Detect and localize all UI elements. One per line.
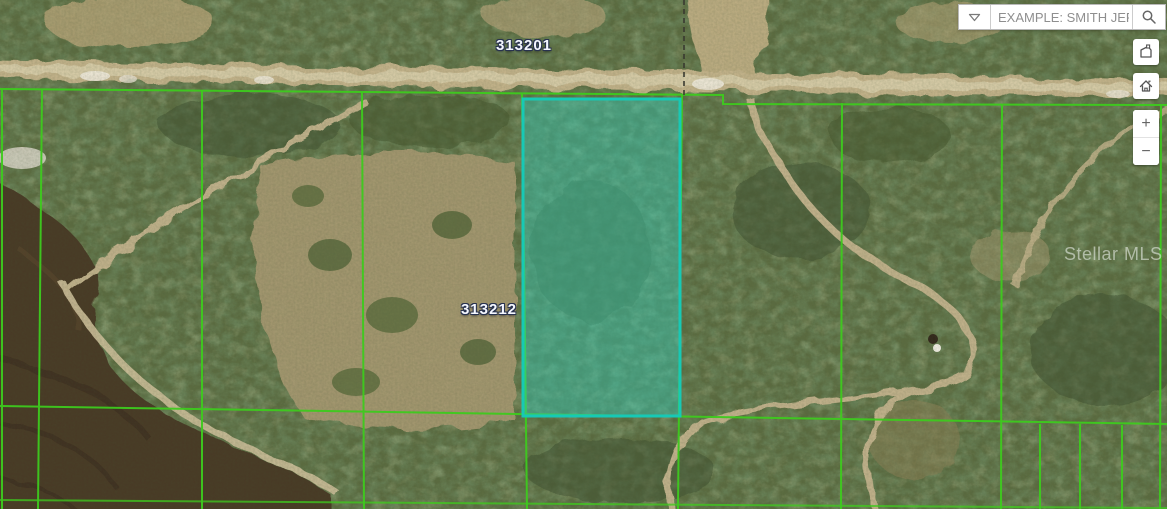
zoom-in-button[interactable]: +	[1133, 110, 1159, 137]
parcel-label-313201: 313201	[496, 37, 552, 54]
polygon-icon	[1138, 44, 1154, 60]
measure-button[interactable]	[1133, 39, 1159, 65]
home-icon	[1138, 78, 1154, 94]
aerial-imagery[interactable]	[0, 0, 1167, 509]
search-bar	[958, 4, 1166, 30]
watermark: Stellar MLS	[1064, 244, 1163, 265]
zoom-out-button[interactable]: −	[1133, 138, 1159, 165]
home-button[interactable]	[1133, 73, 1159, 99]
search-type-dropdown-button[interactable]	[959, 5, 991, 29]
selected-parcel-highlight[interactable]	[523, 99, 680, 416]
chevron-down-icon	[968, 13, 981, 22]
search-input[interactable]	[991, 5, 1132, 29]
map-viewport[interactable]: 313201 313212 Stellar MLS	[0, 0, 1167, 509]
parcel-label-313212: 313212	[461, 301, 517, 318]
magnifier-icon	[1141, 9, 1157, 25]
zoom-controls: + −	[1133, 110, 1159, 165]
search-submit-button[interactable]	[1132, 5, 1165, 29]
